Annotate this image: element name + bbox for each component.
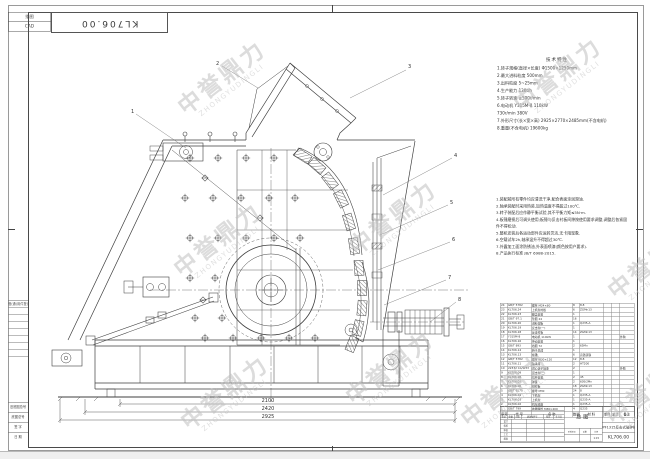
centerlines xyxy=(150,148,468,404)
note-line: 4.板锤磨损后可调头使用;板锤与反击衬板间隙按使用要求调整,调整后各紧固件不得松… xyxy=(496,216,628,230)
dimension-texts: 2100 2420 2925 xyxy=(262,398,275,420)
spec-table: 技术特性 1.转子规格(直径×长度) Φ1500×1250mm2.最大进料粒度 … xyxy=(497,56,617,148)
spec-line: 2.最大进料粒度 500mm xyxy=(497,72,617,80)
aux-cell xyxy=(565,435,580,442)
signature-label: 批准 xyxy=(501,437,512,441)
dim-3: 2925 xyxy=(262,414,275,420)
top-frame xyxy=(163,132,415,330)
aux-cell xyxy=(580,435,591,442)
note-line: 2.轴承装配时采用热装,加热温度不得超过100℃. xyxy=(496,203,628,210)
note-line: 1.装配前所有零件均应清洗干净,配合表面涂润滑油. xyxy=(496,196,628,203)
note-line: 7.外露加工面涂防锈油,外表面喷漆(颜色按用户要求). xyxy=(496,243,628,250)
rear-bracket xyxy=(383,330,399,386)
callout-1: 1 xyxy=(131,109,134,115)
signature-cell xyxy=(527,437,545,441)
front-wall xyxy=(52,140,172,366)
dim-2: 2420 xyxy=(262,406,275,412)
wall-bolts xyxy=(181,154,319,342)
note-line: 3.转子装配后应作静平衡试验,其不平衡力矩≤5N·m. xyxy=(496,210,628,217)
technical-notes: 1.装配前所有零件均应清洗干净,配合表面涂润滑油.2.轴承装配时采用热装,加热温… xyxy=(496,196,628,268)
callout-4: 4 xyxy=(454,153,457,159)
dimension-lines xyxy=(58,399,457,423)
title-block-empty-cell xyxy=(603,407,635,423)
product-title: PF1315反击式破碎机 xyxy=(603,423,635,433)
title-block: 总图 PF1315反击式破碎机 KL706.00 标记处数分区更改文件号签名年月… xyxy=(500,406,636,443)
note-line: 6.空载试车2h,轴承温升不得超过30℃. xyxy=(496,237,628,244)
spec-line: 8.重量(不含电机) 19600kg xyxy=(497,125,617,133)
callout-5: 5 xyxy=(450,200,453,206)
spec-line: 7.外形尺寸(长×宽×高) 2925×2770×2485mm(不含电机) xyxy=(497,117,617,125)
spec-title: 技术特性 xyxy=(497,56,617,63)
spec-line: 730r/min 380V xyxy=(497,110,617,118)
spec-line: 5.转子转速 ≤500r/min xyxy=(497,95,617,103)
callout-8: 8 xyxy=(458,297,461,303)
dim-1: 2100 xyxy=(262,398,275,404)
tension-rod xyxy=(86,293,218,345)
base-frame xyxy=(58,340,462,401)
view-label: 总图 xyxy=(565,407,603,429)
left-brackets xyxy=(124,143,203,297)
spec-line: 3.出料粒度 5~25mm xyxy=(497,80,617,88)
callout-7: 7 xyxy=(448,275,451,281)
spec-line: 4.生产能力 130t/h xyxy=(497,87,617,95)
signature-cell xyxy=(545,437,565,441)
callout-3: 3 xyxy=(408,64,411,70)
signature-cell xyxy=(512,437,527,441)
spec-line: 1.转子规格(直径×长度) Φ1500×1250mm xyxy=(497,65,617,73)
callout-6: 6 xyxy=(452,237,455,243)
feed-chute xyxy=(246,63,356,161)
bom-table: 24GB/T 5782螺栓 M24×8088.823KL706.24上机架衬板6… xyxy=(500,303,636,406)
drawing-number: KL706.00 xyxy=(603,433,635,443)
callout-2: 2 xyxy=(216,61,219,67)
scale-value: 1:15 xyxy=(591,435,603,442)
note-line: 8.产品执行标准 JB/T 6988-2015. xyxy=(496,250,628,257)
note-line: 5.整机安装后各运动部件应运转灵活,无卡阻现象. xyxy=(496,230,628,237)
spec-line: 6.电动机 Y315M-8 110kW xyxy=(497,102,617,110)
